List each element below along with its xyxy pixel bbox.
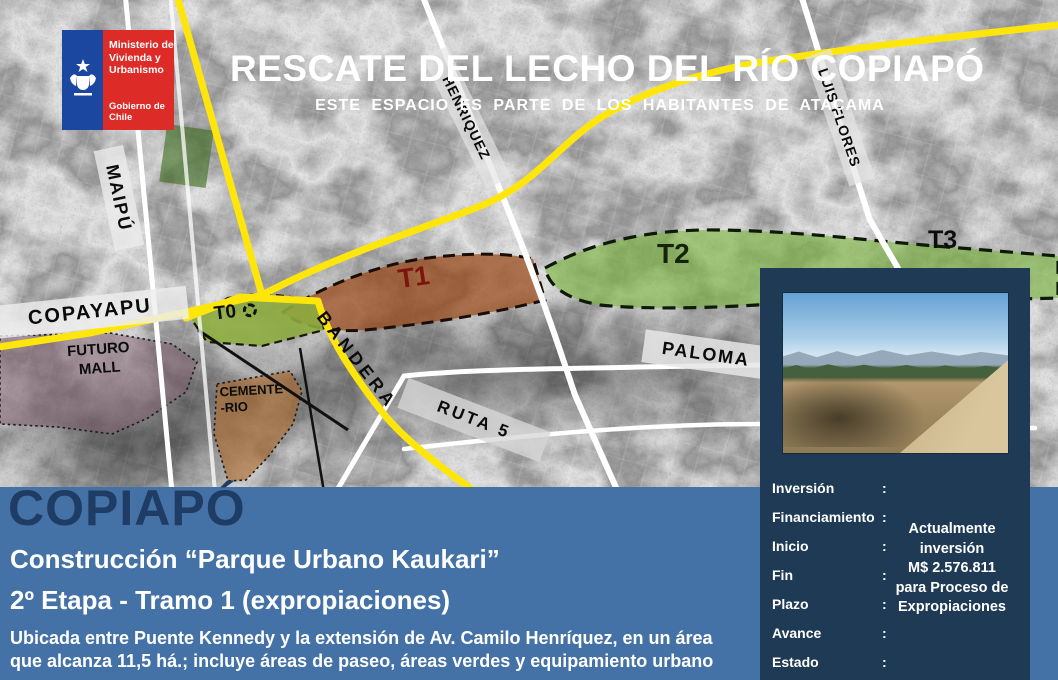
- info-colon: :: [882, 480, 887, 496]
- slide-title: RESCATE DEL LECHO DEL RÍO COPIAPÓ: [230, 48, 970, 90]
- slide: MAIPÚ COPAYAPU HENRIQUEZ LUIS FLORES BAN…: [0, 0, 1058, 680]
- value-line: para Proceso de: [878, 579, 1026, 599]
- roundabout-icon: [242, 302, 258, 318]
- info-label: Fin: [772, 567, 793, 583]
- photo-mountains: [783, 346, 1008, 365]
- description-line2: que alcanza 11,5 há.; incluye áreas de p…: [10, 650, 758, 673]
- info-colon: :: [882, 654, 887, 670]
- value-line: M$ 2.576.811: [878, 559, 1026, 579]
- info-colon: :: [882, 625, 887, 641]
- info-row-avance: Avance:: [772, 625, 1020, 654]
- photo-dark-ground: [783, 376, 923, 446]
- city-name: COPIAPÓ: [8, 479, 246, 537]
- info-label: Inversión: [772, 480, 834, 496]
- ministry-line3: Urbanismo: [109, 64, 174, 77]
- project-title-line1: Construcción “Parque Urbano Kaukari”: [10, 544, 500, 575]
- logo-red-panel: Ministerio de Vivienda y Urbanismo Gobie…: [103, 30, 174, 130]
- road-parallel: [170, 0, 215, 492]
- investment-value: Actualmente inversión M$ 2.576.811 para …: [878, 520, 1026, 618]
- value-line: inversión: [878, 540, 1026, 560]
- government-label: Gobierno de Chile: [109, 101, 174, 123]
- slide-subtitle: ESTE ESPACIO ES PARTE DE LOS HABITANTES …: [230, 97, 970, 115]
- logo-blue-panel: [62, 30, 103, 130]
- ministry-name: Ministerio de Vivienda y Urbanismo: [109, 39, 174, 77]
- tramo-label-t2: T2: [657, 238, 690, 270]
- area-label-cementerio: CEMENTE -RIO: [219, 380, 311, 417]
- tramo-label-t1: T1: [396, 260, 432, 295]
- info-panel: Inversión: Financiamiento: Inicio: Fin: …: [760, 268, 1030, 680]
- chile-coat-of-arms-icon: [68, 58, 98, 102]
- value-line: Expropiaciones: [878, 598, 1026, 618]
- info-label: Avance: [772, 625, 821, 641]
- info-row-estado: Estado:: [772, 654, 1020, 680]
- info-label: Financiamiento: [772, 509, 875, 525]
- ministry-line1: Ministerio de: [109, 39, 174, 52]
- t0-text: T0: [213, 301, 238, 326]
- value-line: Actualmente: [878, 520, 1026, 540]
- riverbed-photo: [782, 292, 1009, 454]
- info-row-inversion: Inversión:: [772, 480, 1020, 509]
- tramo-label-t3: T3: [928, 226, 957, 255]
- minor-road: [300, 348, 324, 492]
- ministry-line2: Vivienda y: [109, 52, 174, 65]
- info-label: Inicio: [772, 538, 809, 554]
- project-title-line2: 2º Etapa - Tramo 1 (expropiaciones): [10, 585, 450, 616]
- project-description: Ubicada entre Puente Kennedy y la extens…: [10, 627, 758, 673]
- ministry-logo: Ministerio de Vivienda y Urbanismo Gobie…: [62, 30, 174, 130]
- info-label: Estado: [772, 654, 819, 670]
- info-label: Plazo: [772, 596, 809, 612]
- description-line1: Ubicada entre Puente Kennedy y la extens…: [10, 627, 758, 650]
